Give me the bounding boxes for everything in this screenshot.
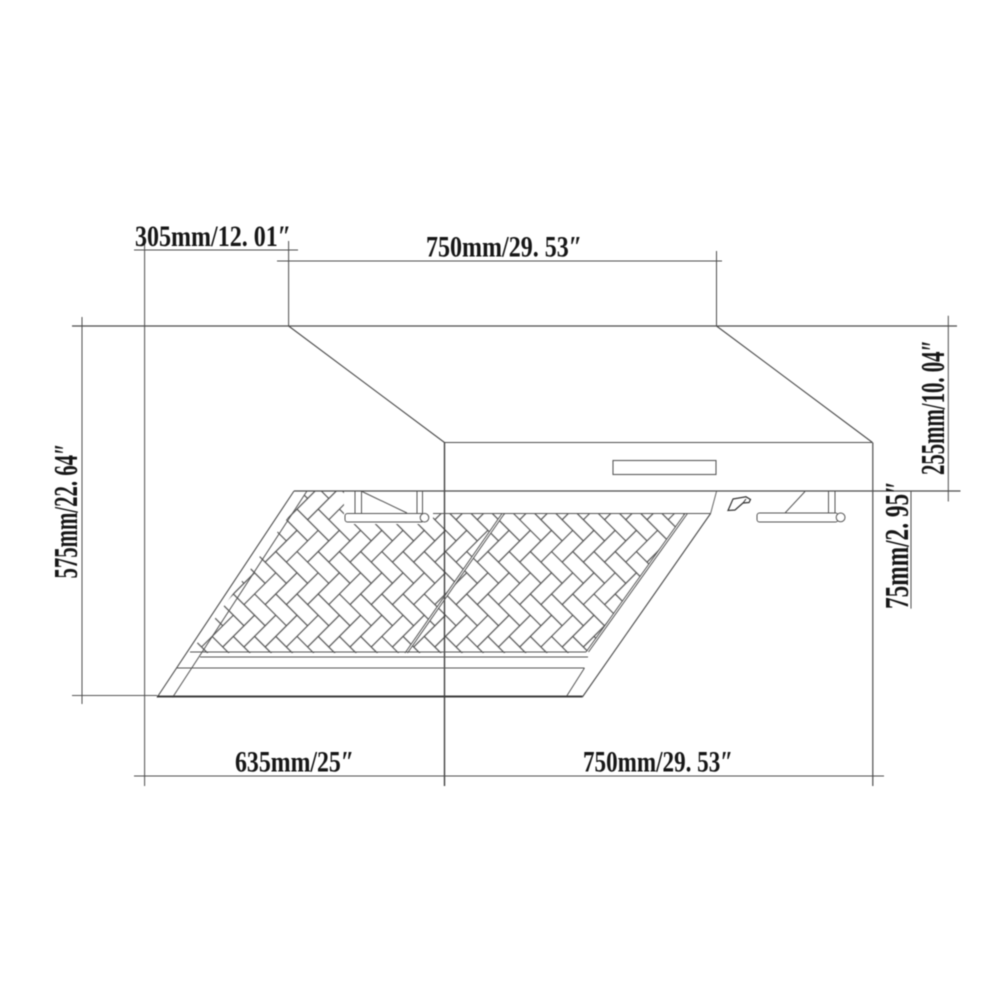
- svg-text:305mm/12. 01″: 305mm/12. 01″: [135, 220, 291, 253]
- svg-text:575mm/22. 64″: 575mm/22. 64″: [48, 444, 85, 579]
- svg-text:750mm/29. 53″: 750mm/29. 53″: [583, 746, 733, 779]
- svg-text:75mm/2. 95″: 75mm/2. 95″: [879, 481, 916, 609]
- svg-text:750mm/29. 53″: 750mm/29. 53″: [426, 231, 582, 264]
- svg-text:255mm/10. 04″: 255mm/10. 04″: [915, 340, 952, 475]
- svg-text:635mm/25″: 635mm/25″: [235, 746, 354, 779]
